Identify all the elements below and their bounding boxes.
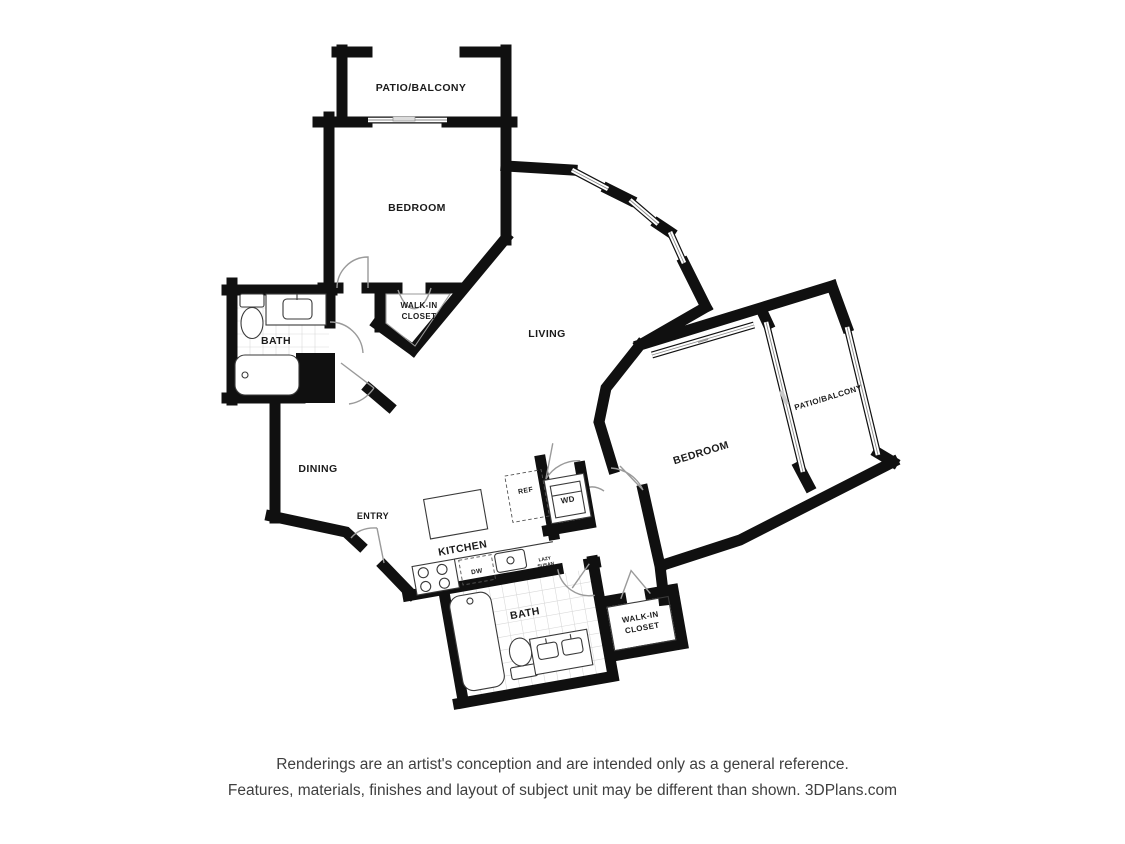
disclaimer-line-1: Renderings are an artist's conception an…: [0, 752, 1125, 778]
sliding-door-handle: [393, 117, 415, 122]
room-label-entry: ENTRY: [357, 511, 389, 521]
floor-plan-page: KITCHEN REF DW LAZY SUSAN WD BATH WALK-I…: [0, 0, 1125, 844]
room-label-kitchen: KITCHEN: [437, 538, 488, 558]
room-label-dining: DINING: [298, 463, 337, 475]
toilet-tank-icon: [240, 294, 264, 307]
kitchen-sink-icon: [494, 549, 527, 573]
room-label-bedroom-top: BEDROOM: [388, 202, 446, 214]
kitchen-wing-group: KITCHEN REF DW LAZY SUSAN WD BATH WALK-I…: [386, 427, 686, 709]
room-label-bath-left: BATH: [261, 335, 291, 347]
disclaimer-text: Renderings are an artist's conception an…: [0, 752, 1125, 803]
room-label-closet-top-2: CLOSET: [402, 312, 437, 321]
room-label-bedroom-right: BEDROOM: [672, 439, 731, 467]
room-label-patio-right: PATIO/BALCONY: [793, 383, 863, 412]
room-label-bath-bottom: BATH: [509, 605, 541, 622]
room-label-closet-top-1: WALK-IN: [400, 301, 437, 310]
floor-plan-drawing: KITCHEN REF DW LAZY SUSAN WD BATH WALK-I…: [0, 0, 1125, 844]
wall-block-bath-chase: [296, 353, 335, 403]
bathtub-icon: [235, 355, 299, 395]
label-refrigerator: REF: [518, 486, 535, 496]
double-vanity-icon: [529, 629, 592, 675]
toilet-bowl-icon: [241, 308, 263, 339]
room-label-living: LIVING: [528, 328, 565, 340]
room-label-patio-top: PATIO/BALCONY: [376, 82, 467, 94]
vanity-sink-icon: [283, 299, 312, 319]
disclaimer-line-2: Features, materials, finishes and layout…: [0, 778, 1125, 804]
label-dishwasher: DW: [471, 567, 484, 576]
kitchen-island-icon: [424, 489, 488, 538]
